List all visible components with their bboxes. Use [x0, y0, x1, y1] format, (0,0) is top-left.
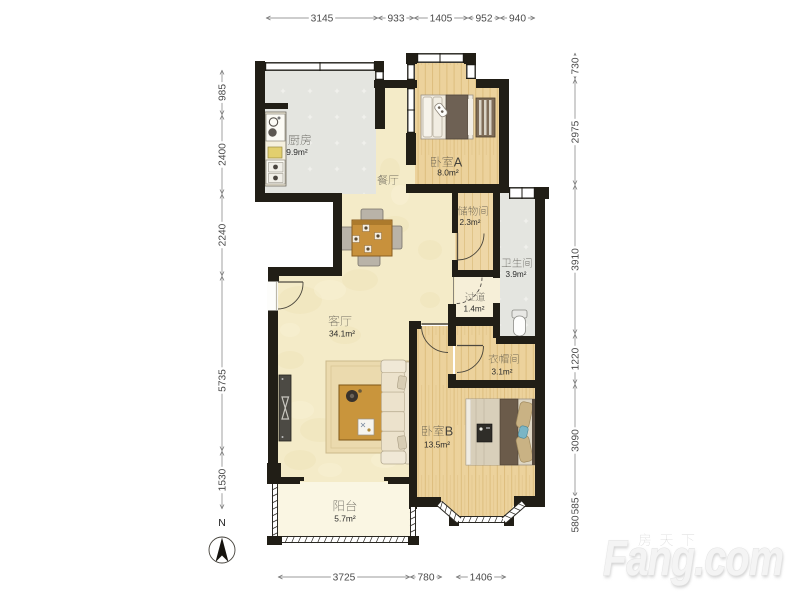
svg-text:933: 933: [388, 13, 405, 24]
svg-text:8.0m²: 8.0m²: [437, 167, 459, 177]
svg-text:1530: 1530: [217, 468, 228, 491]
svg-text:9.9m²: 9.9m²: [286, 147, 308, 157]
svg-text:5735: 5735: [217, 369, 228, 392]
svg-text:940: 940: [509, 13, 526, 24]
svg-text:2.3m²: 2.3m²: [460, 218, 481, 227]
svg-text:985: 985: [217, 84, 228, 101]
svg-text:Fang.com: Fang.com: [603, 530, 783, 587]
svg-text:780: 780: [418, 572, 435, 583]
svg-text:2240: 2240: [217, 223, 228, 246]
svg-text:3.9m²: 3.9m²: [506, 270, 527, 279]
svg-text:1406: 1406: [470, 572, 493, 583]
svg-text:1.4m²: 1.4m²: [464, 304, 485, 313]
svg-text:2400: 2400: [217, 143, 228, 166]
svg-text:952: 952: [476, 13, 493, 24]
svg-text:730: 730: [570, 57, 581, 74]
svg-text:3910: 3910: [570, 248, 581, 271]
svg-text:2975: 2975: [570, 120, 581, 143]
svg-text:N: N: [218, 517, 226, 529]
svg-text:3090: 3090: [570, 429, 581, 452]
svg-text:13.5m²: 13.5m²: [424, 439, 450, 449]
svg-text:580: 580: [570, 515, 581, 532]
svg-text:5.7m²: 5.7m²: [334, 513, 356, 523]
svg-text:3145: 3145: [311, 13, 334, 24]
svg-text:585: 585: [570, 497, 581, 514]
svg-text:1220: 1220: [570, 347, 581, 370]
svg-text:3.1m²: 3.1m²: [492, 367, 513, 376]
svg-text:B: B: [445, 424, 453, 438]
svg-text:1405: 1405: [430, 13, 453, 24]
svg-text:3725: 3725: [333, 572, 356, 583]
svg-text:34.1m²: 34.1m²: [329, 328, 355, 338]
